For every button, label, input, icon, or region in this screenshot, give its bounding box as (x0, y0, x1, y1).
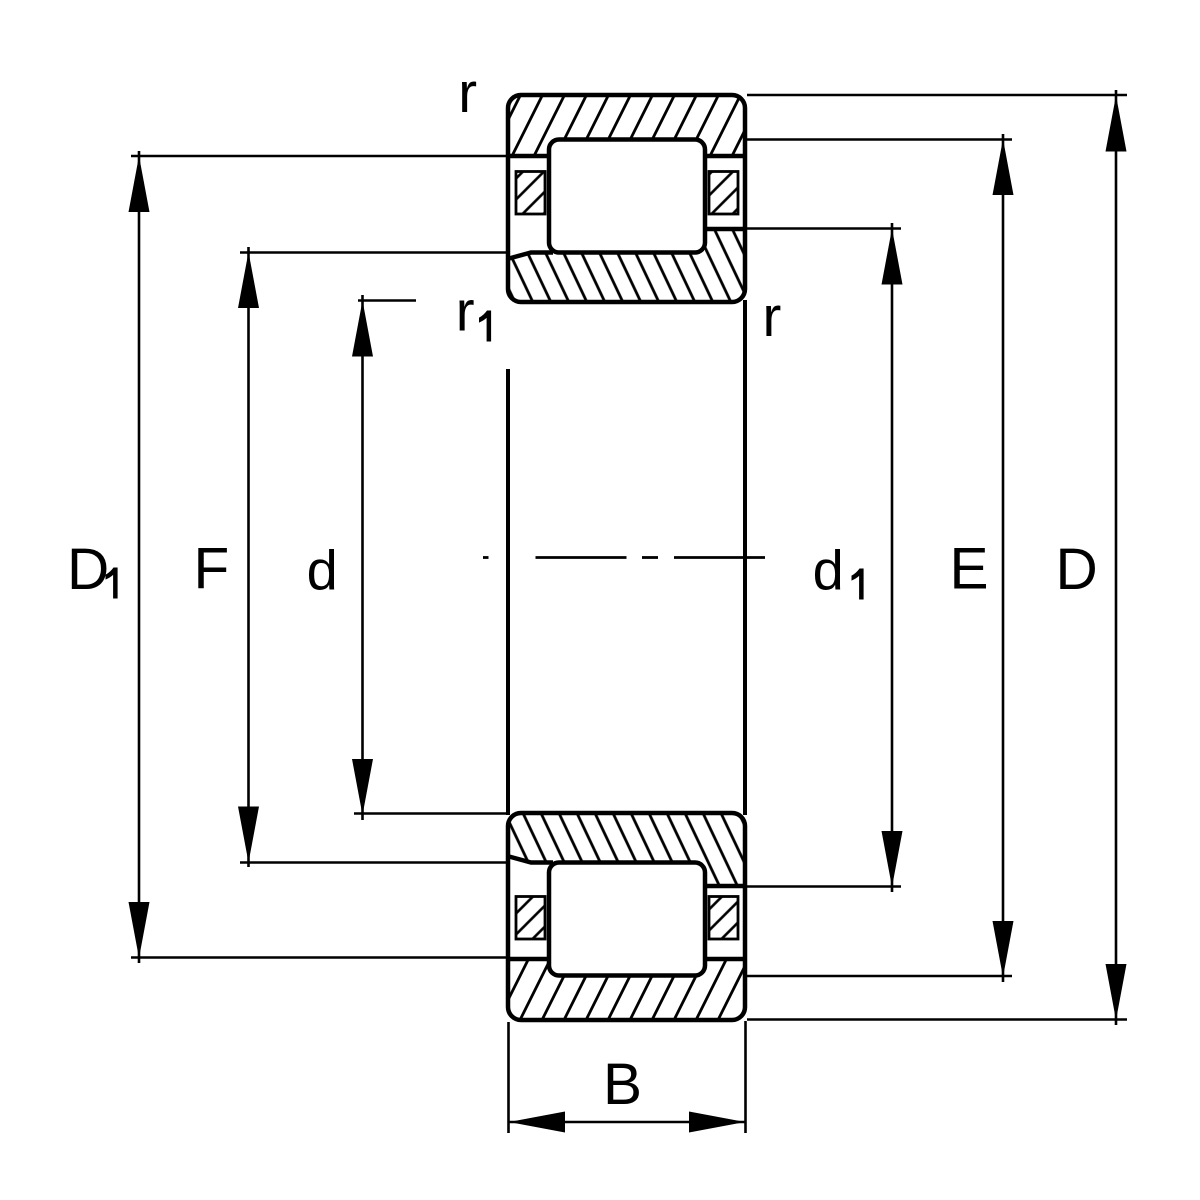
svg-text:E: E (950, 537, 989, 602)
svg-text:B: B (603, 1052, 642, 1117)
svg-text:D: D (1056, 537, 1098, 602)
svg-text:r: r (458, 61, 477, 124)
svg-text:r: r (456, 280, 475, 343)
svg-text:d: d (307, 538, 338, 601)
svg-text:D: D (67, 537, 109, 602)
svg-text:r: r (763, 285, 782, 348)
svg-text:d: d (813, 538, 844, 601)
svg-text:F: F (194, 537, 230, 602)
